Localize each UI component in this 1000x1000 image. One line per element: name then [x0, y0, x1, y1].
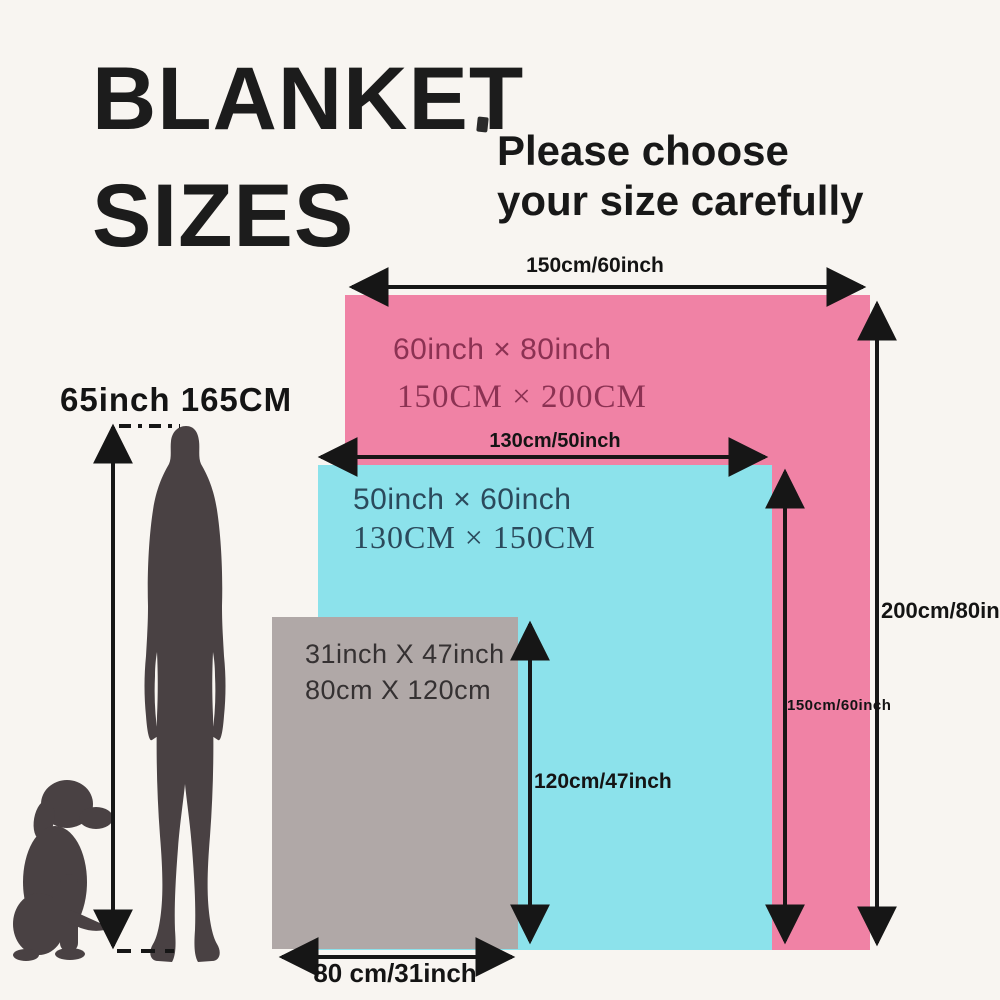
- blanket-large-size-cm: 150CM × 200CM: [397, 379, 647, 416]
- title-line-1: BLANKET: [92, 40, 524, 157]
- blanket-medium-size-inch: 50inch × 60inch: [353, 483, 572, 517]
- label-width-small: 80 cm/31inch: [300, 958, 490, 989]
- ink-spot-artifact: [476, 116, 489, 132]
- page-title: BLANKET SIZES: [92, 40, 524, 274]
- blanket-small-size-inch: 31inch X 47inch: [305, 639, 505, 670]
- label-width-medium: 130cm/50inch: [440, 430, 670, 453]
- label-width-large: 150cm/60inch: [460, 254, 730, 278]
- blanket-small-size-cm: 80cm X 120cm: [305, 675, 491, 706]
- blanket-small-rect: 31inch X 47inch 80cm X 120cm: [272, 617, 518, 949]
- subtitle: Please choose your size carefully: [497, 126, 864, 226]
- dog-silhouette: [10, 774, 118, 962]
- subtitle-line-2: your size carefully: [497, 176, 864, 226]
- woman-silhouette: [138, 424, 232, 966]
- label-height-large: 200cm/80inch: [881, 598, 1000, 624]
- blanket-large-size-inch: 60inch × 80inch: [393, 333, 612, 367]
- size-chart-infographic: BLANKET SIZES Please choose your size ca…: [0, 0, 1000, 1000]
- label-person-height: 65inch 165CM: [60, 381, 292, 419]
- woman-silhouette-shape: [145, 426, 226, 962]
- subtitle-line-1: Please choose: [497, 126, 864, 176]
- label-height-medium: 150cm/60inch: [787, 697, 891, 714]
- dog-silhouette-shape: [13, 780, 113, 961]
- label-height-small: 120cm/47inch: [534, 770, 672, 794]
- blanket-medium-size-cm: 130CM × 150CM: [353, 519, 596, 556]
